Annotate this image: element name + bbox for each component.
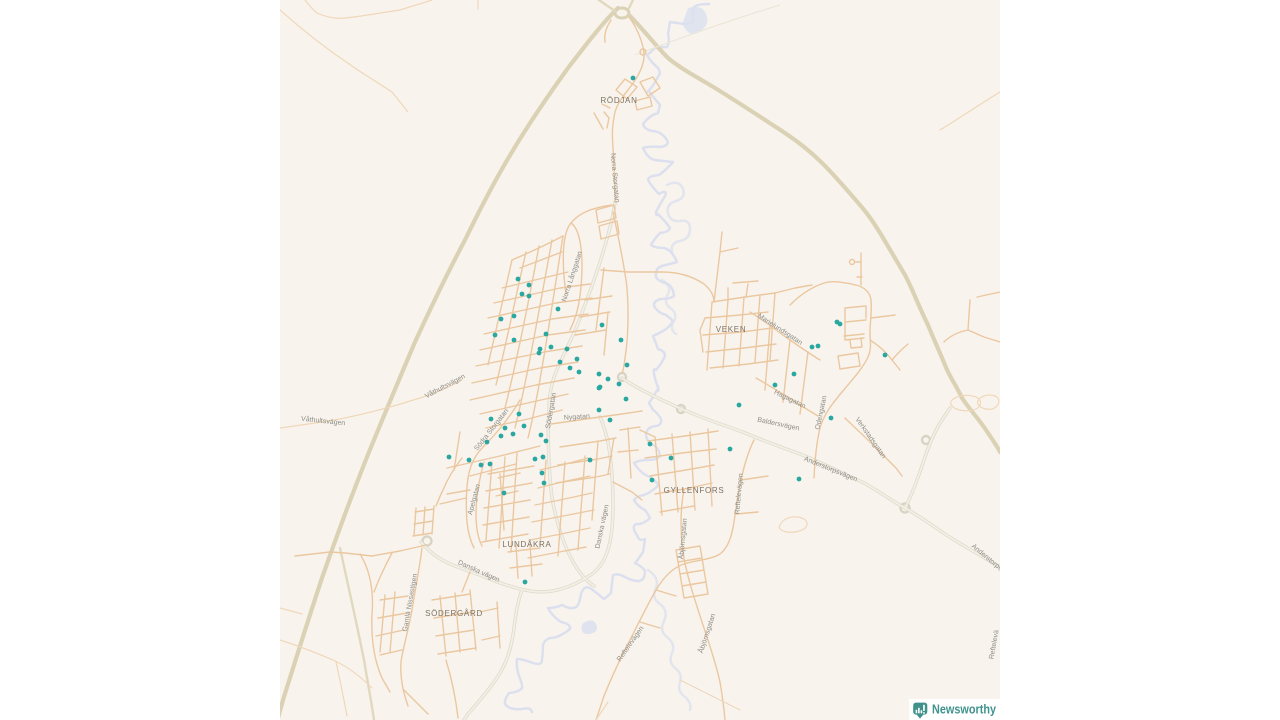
svg-text:LUNDÅKRA: LUNDÅKRA — [502, 540, 551, 549]
svg-text:SÖDERGÅRD: SÖDERGÅRD — [425, 609, 483, 618]
svg-text:GYLLENFORS: GYLLENFORS — [664, 486, 725, 495]
svg-text:VEKEN: VEKEN — [716, 325, 747, 334]
svg-text:Newsworthy: Newsworthy — [932, 702, 997, 717]
svg-text:RÖDJAN: RÖDJAN — [600, 96, 637, 105]
